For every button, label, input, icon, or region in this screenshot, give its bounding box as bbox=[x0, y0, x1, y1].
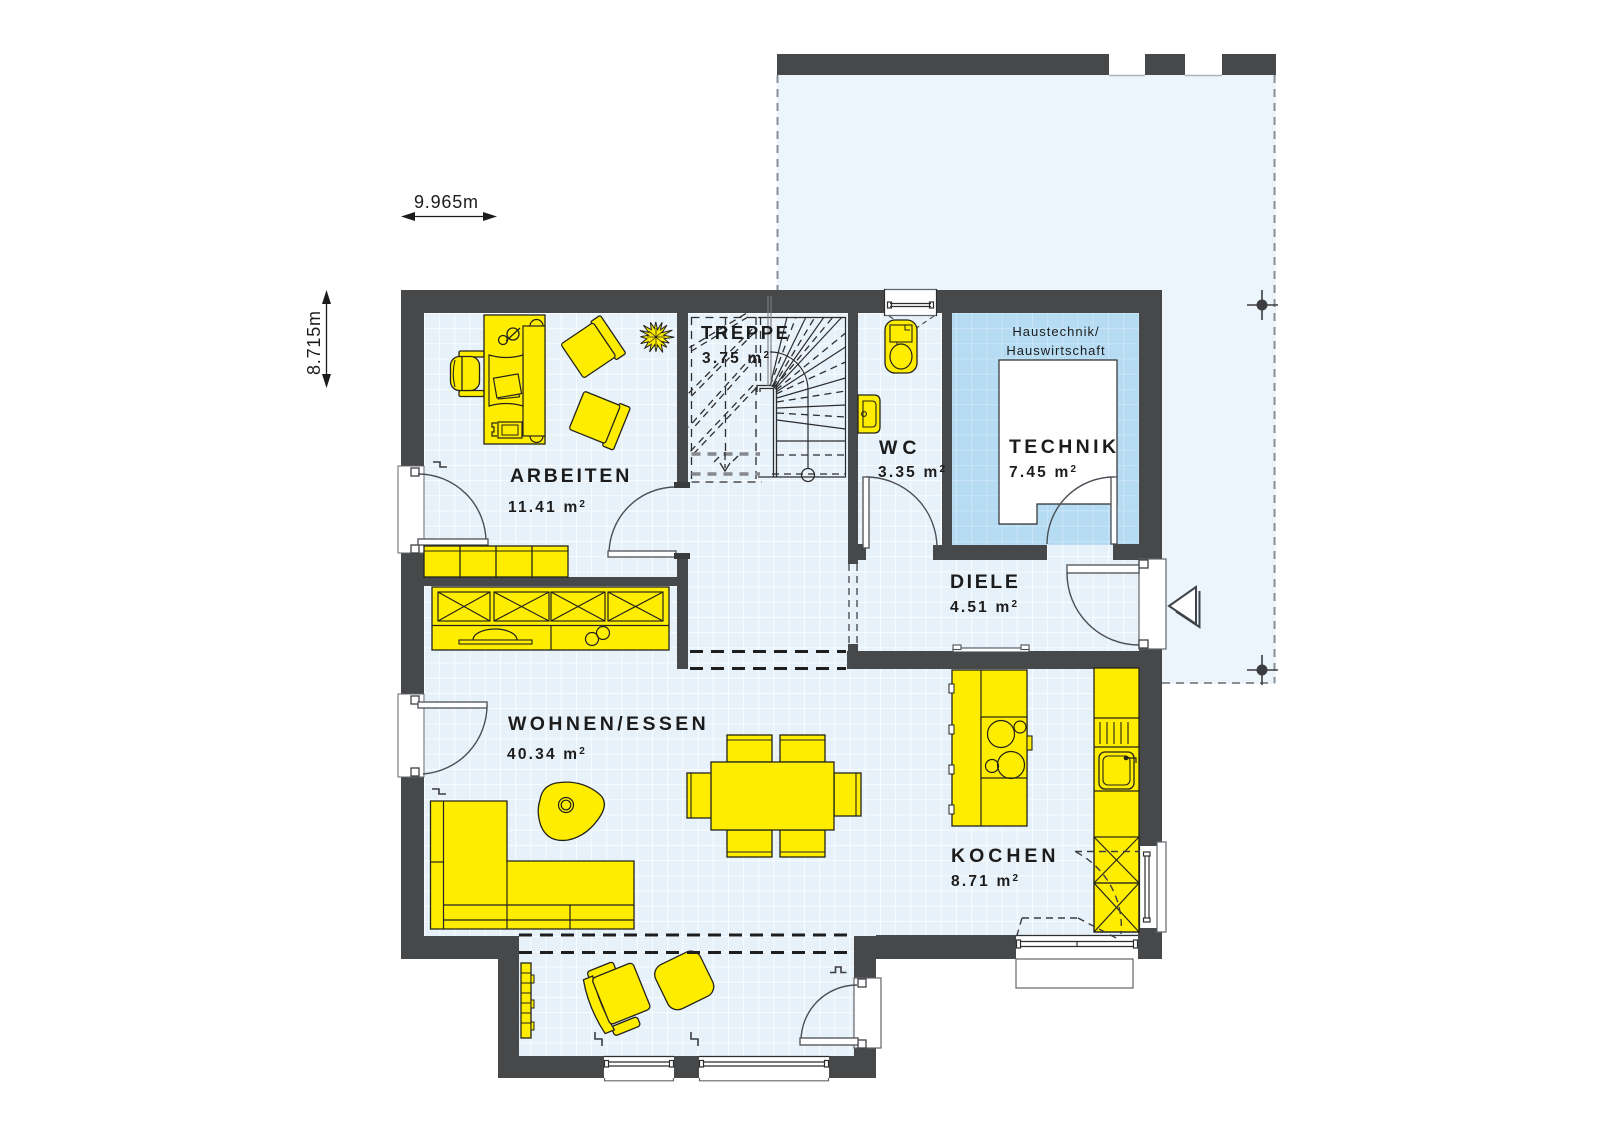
svg-text:TREPPE: TREPPE bbox=[701, 322, 791, 343]
svg-text:Hauswirtschaft: Hauswirtschaft bbox=[1006, 343, 1105, 358]
svg-text:WC: WC bbox=[879, 437, 922, 459]
svg-text:8.715m: 8.715m bbox=[304, 310, 324, 375]
svg-text:11.41 m2: 11.41 m2 bbox=[508, 499, 587, 516]
svg-text:TECHNIK: TECHNIK bbox=[1009, 436, 1119, 458]
svg-text:40.34 m2: 40.34 m2 bbox=[507, 746, 587, 763]
svg-text:7.45 m2: 7.45 m2 bbox=[1009, 464, 1078, 481]
svg-text:DIELE: DIELE bbox=[950, 571, 1020, 593]
svg-text:WOHNEN/ESSEN: WOHNEN/ESSEN bbox=[508, 713, 709, 735]
svg-text:Haustechnik/: Haustechnik/ bbox=[1012, 324, 1099, 339]
svg-text:9.965m: 9.965m bbox=[414, 192, 479, 212]
svg-text:8.71 m2: 8.71 m2 bbox=[951, 873, 1020, 890]
svg-text:KOCHEN: KOCHEN bbox=[951, 845, 1060, 867]
svg-text:3.75 m2: 3.75 m2 bbox=[702, 350, 771, 367]
svg-text:4.51 m2: 4.51 m2 bbox=[950, 599, 1019, 616]
svg-text:ARBEITEN: ARBEITEN bbox=[510, 465, 632, 487]
svg-text:3.35 m2: 3.35 m2 bbox=[878, 464, 947, 481]
